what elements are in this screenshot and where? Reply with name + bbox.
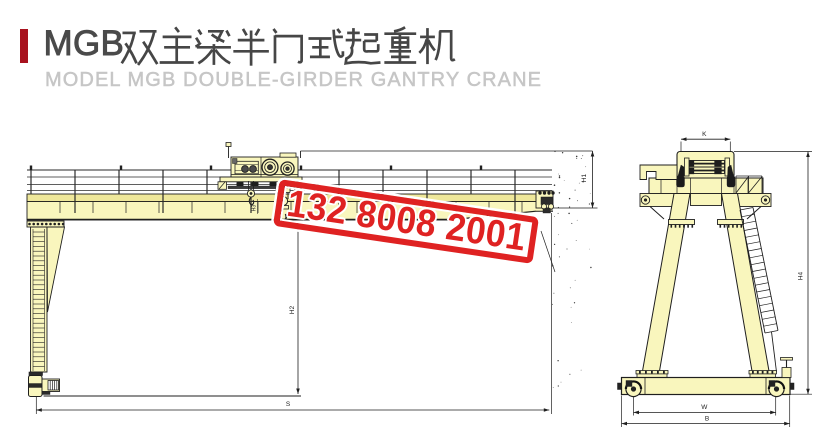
- svg-text:H3: H3: [252, 205, 258, 212]
- svg-text:W: W: [701, 404, 708, 411]
- svg-text:H2: H2: [289, 305, 296, 314]
- svg-text:B: B: [705, 416, 709, 423]
- svg-text:H4: H4: [798, 271, 805, 280]
- svg-text:K: K: [702, 131, 707, 138]
- svg-text:H1: H1: [581, 173, 588, 182]
- svg-text:S: S: [286, 401, 291, 408]
